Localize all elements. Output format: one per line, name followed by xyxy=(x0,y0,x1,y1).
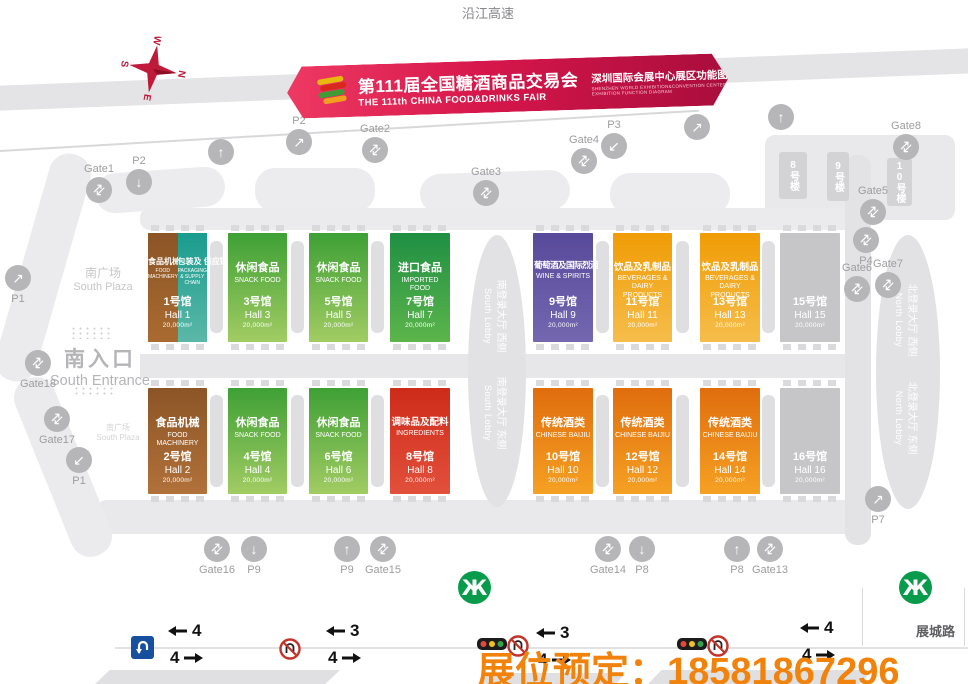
p9-marker: ↑P9 xyxy=(334,536,360,576)
hall-number: 15号馆 Hall 15 20,000m² xyxy=(780,293,840,329)
hall-category: 传统酒类 CHINESE BAIJIU xyxy=(701,414,759,440)
arrow-ne-icon: ↗ xyxy=(865,486,891,512)
arrow-up-icon: ↑ xyxy=(768,104,794,130)
marker-label: Gate1 xyxy=(84,163,114,175)
gate18-marker: ⇅Gate18 xyxy=(20,350,56,390)
hall-4: 休闲食品 SNACK FOOD 4号馆 Hall 4 20,000m² xyxy=(228,388,287,494)
arrow-up-icon: ↑ xyxy=(334,536,360,562)
gate6-marker: Gate6⇅ xyxy=(842,262,872,302)
park-down-icon: ↓ xyxy=(126,169,152,195)
hall-number: 9号馆 Hall 9 20,000m² xyxy=(533,293,593,329)
compass-icon: N E S W xyxy=(115,31,191,107)
south-plaza-label: 南广场 South Plaza xyxy=(48,264,158,293)
lane-number: 4 xyxy=(170,648,179,668)
banner-venue-block: 深圳国际会展中心展区功能图 SHENZHEN WORLD EXHIBITION&… xyxy=(591,67,728,96)
westbound-lane-count: 3 xyxy=(326,621,359,641)
hall-13: 饮品及乳制品 BEVERAGES & DAIRY PRODUCTS 13号馆 H… xyxy=(700,233,760,342)
marker-label: P1 xyxy=(11,293,24,305)
marker-label: P9 xyxy=(340,564,353,576)
gate-icon: ⇅ xyxy=(20,345,57,382)
marker-label: P8 xyxy=(635,564,648,576)
gate13-marker: ⇅Gate13 xyxy=(752,536,788,576)
curb-line xyxy=(862,588,863,646)
park-down-icon: ↓ xyxy=(241,536,267,562)
dock-pillar xyxy=(210,395,223,487)
south-lobby-west-label: 南登录大厅 西侧 South Lobby xyxy=(480,261,514,371)
arrow-up-icon: ↑ xyxy=(724,536,750,562)
marker-label: Gate16 xyxy=(199,564,235,576)
marker-label: Gate13 xyxy=(752,564,788,576)
gate-icon: ⇅ xyxy=(848,222,885,259)
dock-pillar xyxy=(762,395,775,487)
hall-number: 16号馆 Hall 16 20,000m² xyxy=(780,448,840,484)
gate8-marker: Gate8⇅ xyxy=(891,120,921,160)
marker-label: Gate18 xyxy=(20,378,56,390)
hall-number: 10号馆 Hall 10 20,000m² xyxy=(533,448,593,484)
hall-10: 传统酒类 CHINESE BAIJIU 10号馆 Hall 10 20,000m… xyxy=(533,388,593,494)
banner-title-block: 第111届全国糖酒商品交易会 THE 111th CHINA FOOD&DRIN… xyxy=(358,66,580,109)
hall-6: 休闲食品 SNACK FOOD 6号馆 Hall 6 20,000m² xyxy=(309,388,368,494)
arrow-up-icon: ↑ xyxy=(208,139,234,165)
arrow-ne-icon: ↗ xyxy=(5,265,31,291)
south-lobby-east-label: 南登录大厅 东侧 South Lobby xyxy=(480,358,514,468)
hall-category: 调味品及配料 INGREDIENTS xyxy=(391,414,449,438)
dock-pillar xyxy=(291,395,304,487)
gate1-marker: Gate1⇅ xyxy=(84,163,114,203)
marker-label: Gate7 xyxy=(873,258,903,270)
gate-icon: ⇅ xyxy=(888,129,925,166)
road-shape xyxy=(8,371,118,563)
gate-icon: ⇅ xyxy=(357,132,394,169)
gate7-marker: Gate7⇅ xyxy=(873,258,903,298)
hall-category: 休闲食品 SNACK FOOD xyxy=(310,414,367,440)
hall-category: 休闲食品 SNACK FOOD xyxy=(229,414,286,440)
hall-9: 葡萄酒及国际烈酒 WINE & SPIRITS 9号馆 Hall 9 20,00… xyxy=(533,233,593,342)
fair-banner: 第111届全国糖酒商品交易会 THE 111th CHINA FOOD&DRIN… xyxy=(286,53,728,119)
dock-pillar xyxy=(210,241,223,333)
hall-number: 14号馆 Hall 14 20,000m² xyxy=(700,448,760,484)
dock-pillar xyxy=(676,241,689,333)
hall-number: 11号馆 Hall 11 20,000m² xyxy=(613,293,672,329)
gate15-marker: ⇅Gate15 xyxy=(365,536,401,576)
fair-logo-icon xyxy=(315,73,352,110)
hall-7: 进口食品 IMPORTED FOOD 7号馆 Hall 7 20,000m² xyxy=(390,233,450,342)
north-lobby-east-label: 北登录大厅 东侧 North Lobby xyxy=(891,363,925,473)
eastbound-lane-count: 4 xyxy=(170,648,203,668)
marker-label: Gate15 xyxy=(365,564,401,576)
p8-marker: ↑P8 xyxy=(724,536,750,576)
hall-category: 传统酒类 CHINESE BAIJIU xyxy=(614,414,671,440)
marker-label: Gate17 xyxy=(39,434,75,446)
curb-line xyxy=(964,588,965,646)
p7-marker: ↗P7 xyxy=(865,486,891,526)
arrow-marker: ↑ xyxy=(208,139,234,165)
hall-16: 16号馆 Hall 16 20,000m² xyxy=(780,388,840,494)
svg-text:N: N xyxy=(175,69,187,78)
venue-map: 沿江高速 N E S W 第111届全国糖酒商品交易会 THE 111th CH… xyxy=(0,0,968,684)
gate5-marker: Gate5⇅ xyxy=(858,185,888,225)
lane-number: 4 xyxy=(328,648,337,668)
marker-label: P3 xyxy=(607,119,620,131)
gate-icon: ⇅ xyxy=(81,172,118,209)
westbound-lane-count: 4 xyxy=(168,621,201,641)
hall-number: 2号馆 Hall 2 20,000m² xyxy=(148,448,207,484)
hall-category: 进口食品 IMPORTED FOOD xyxy=(391,259,449,294)
p2-marker: P2↗ xyxy=(286,115,312,155)
metro-logo-icon: Ж xyxy=(899,571,932,604)
hall-number: 3号馆 Hall 3 20,000m² xyxy=(228,293,287,329)
p3-marker: P3↙ xyxy=(601,119,627,159)
dock-pillar xyxy=(371,241,384,333)
gate-icon: ⇅ xyxy=(870,267,907,304)
tower-8: 8号楼 xyxy=(779,152,807,199)
road-name-label: 展城路 xyxy=(916,621,955,640)
u-turn-sign-icon xyxy=(131,636,154,659)
hall-category: 包装及 供应链 PACKAGING & SUPPLY CHAIN xyxy=(178,257,208,286)
marker-label: Gate6 xyxy=(842,262,872,274)
arrow-ne-icon: ↗ xyxy=(684,114,710,140)
hall-15: 15号馆 Hall 15 20,000m² xyxy=(780,233,840,342)
svg-text:W: W xyxy=(150,35,163,47)
hall-1: 食品机械 FOOD MACHINERY 包装及 供应链 PACKAGING & … xyxy=(148,233,207,342)
dock-pillar xyxy=(762,241,775,333)
dock-pillar xyxy=(596,395,609,487)
hall-number: 4号馆 Hall 4 20,000m² xyxy=(228,448,287,484)
marker-label: Gate5 xyxy=(858,185,888,197)
p8-marker: ↓P8 xyxy=(629,536,655,576)
svg-text:S: S xyxy=(118,60,130,69)
booth-booking-hotline: 展位预定：18581867296 xyxy=(477,640,899,684)
lane-number: 4 xyxy=(192,621,201,641)
gate-icon: ⇅ xyxy=(566,143,603,180)
gate4-marker: Gate4⇅ xyxy=(569,134,599,174)
gate-icon: ⇅ xyxy=(468,175,505,212)
hall-category: 休闲食品 SNACK FOOD xyxy=(229,259,286,285)
p2-marker: P2↓ xyxy=(126,155,152,195)
gate-icon: ⇅ xyxy=(365,531,402,568)
marker-label: Gate14 xyxy=(590,564,626,576)
hall-number: 12号馆 Hall 12 20,000m² xyxy=(613,448,672,484)
marker-label: Gate2 xyxy=(360,123,390,135)
westbound-lane-count: 4 xyxy=(800,618,833,638)
expressway-label: 沿江高速 xyxy=(462,3,514,22)
park-ne-icon: ↗ xyxy=(286,129,312,155)
p1-marker: ↗P1 xyxy=(5,265,31,305)
hall-category: 食品机械 FOOD MACHINERY xyxy=(148,257,178,280)
marker-label: P8 xyxy=(730,564,743,576)
gate-icon: ⇅ xyxy=(590,531,627,568)
gate14-marker: ⇅Gate14 xyxy=(590,536,626,576)
south-plaza-small-label: 南广场 South Plaza xyxy=(88,423,148,443)
hall-number: 5号馆 Hall 5 20,000m² xyxy=(309,293,368,329)
hall-category: 传统酒类 CHINESE BAIJIU xyxy=(534,414,592,440)
road-shape xyxy=(255,168,375,212)
gate-icon: ⇅ xyxy=(752,531,789,568)
hall-8: 调味品及配料 INGREDIENTS 8号馆 Hall 8 20,000m² xyxy=(390,388,450,494)
marker-label: P1 xyxy=(72,475,85,487)
arrow-marker: ↑ xyxy=(768,104,794,130)
hall-number: 6号馆 Hall 6 20,000m² xyxy=(309,448,368,484)
lane-number: 3 xyxy=(350,621,359,641)
arrow-marker: ↗ xyxy=(684,114,710,140)
hall-12: 传统酒类 CHINESE BAIJIU 12号馆 Hall 12 20,000m… xyxy=(613,388,672,494)
gate-icon: ⇅ xyxy=(199,531,236,568)
hall-category: 休闲食品 SNACK FOOD xyxy=(310,259,367,285)
road-shadow xyxy=(95,670,340,684)
hall-number: 13号馆 Hall 13 20,000m² xyxy=(700,293,760,329)
hall-category: 食品机械 FOOD MACHINERY xyxy=(149,414,206,449)
park-se-icon: ↙ xyxy=(601,133,627,159)
park-se-icon: ↙ xyxy=(66,447,92,473)
dock-pillar xyxy=(291,241,304,333)
marker-label: P9 xyxy=(247,564,260,576)
p9-marker: ↓P9 xyxy=(241,536,267,576)
hall-number: 1号馆 Hall 1 20,000m² xyxy=(148,293,207,329)
marker-label: Gate3 xyxy=(471,166,501,178)
gate2-marker: Gate2⇅ xyxy=(360,123,390,163)
tower-10: 10号楼 xyxy=(887,158,912,206)
eastbound-lane-count: 4 xyxy=(328,648,361,668)
gate16-marker: ⇅Gate16 xyxy=(199,536,235,576)
hall-number: 7号馆 Hall 7 20,000m² xyxy=(390,293,450,329)
lane-number: 4 xyxy=(824,618,833,638)
hall-2: 食品机械 FOOD MACHINERY 2号馆 Hall 2 20,000m² xyxy=(148,388,207,494)
gate17-marker: ⇅Gate17 xyxy=(39,406,75,446)
marker-label: Gate8 xyxy=(891,120,921,132)
dock-pillar xyxy=(371,395,384,487)
road-shape xyxy=(95,500,870,534)
dock-pillar xyxy=(596,241,609,333)
crosswalk-dots xyxy=(70,326,114,339)
marker-label: Gate4 xyxy=(569,134,599,146)
tower-9: 9号楼 xyxy=(827,152,849,201)
no-u-turn-sign-icon xyxy=(279,638,301,660)
gate-icon: ⇅ xyxy=(855,194,892,231)
hall-5: 休闲食品 SNACK FOOD 5号馆 Hall 5 20,000m² xyxy=(309,233,368,342)
metro-logo-icon: Ж xyxy=(458,571,491,604)
gate-icon: ⇅ xyxy=(39,401,76,438)
svg-text:E: E xyxy=(140,93,152,102)
hall-14: 传统酒类 CHINESE BAIJIU 14号馆 Hall 14 20,000m… xyxy=(700,388,760,494)
gate3-marker: Gate3⇅ xyxy=(471,166,501,206)
hall-11: 饮品及乳制品 BEVERAGES & DAIRY PRODUCTS 11号馆 H… xyxy=(613,233,672,342)
gate-icon: ⇅ xyxy=(839,271,876,308)
hall-3: 休闲食品 SNACK FOOD 3号馆 Hall 3 20,000m² xyxy=(228,233,287,342)
hall-number: 8号馆 Hall 8 20,000m² xyxy=(390,448,450,484)
marker-label: P2 xyxy=(132,155,145,167)
p1-marker: ↙P1 xyxy=(66,447,92,487)
park-down-icon: ↓ xyxy=(629,536,655,562)
marker-label: P7 xyxy=(871,514,884,526)
dock-pillar xyxy=(676,395,689,487)
hall-category: 葡萄酒及国际烈酒 WINE & SPIRITS xyxy=(534,259,592,281)
